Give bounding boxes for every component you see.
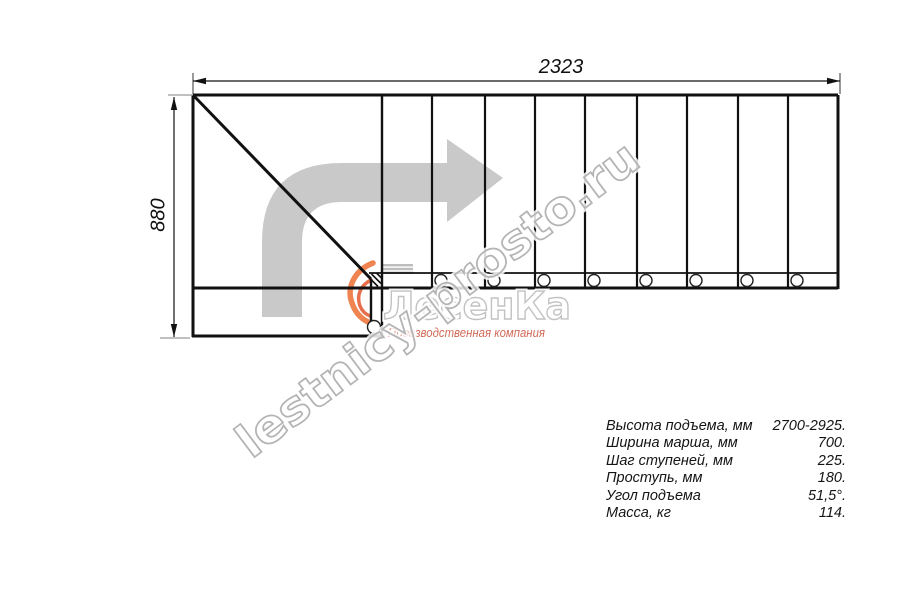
dim-arrow-up <box>171 97 177 110</box>
dimension-value-height: 880 <box>148 198 171 231</box>
dimension-top <box>193 73 840 94</box>
spec-list: Высота подъема, мм 2700-2925. Ширина мар… <box>606 418 846 522</box>
spec-label: Угол подъема <box>606 488 701 505</box>
spec-value: 225. <box>818 453 846 470</box>
spec-label: Ширина марша, мм <box>606 435 738 452</box>
logo-swoosh <box>350 263 373 322</box>
spec-row-step-pitch: Шаг ступеней, мм 225. <box>606 453 846 470</box>
dim-arrow-down <box>171 324 177 337</box>
spec-value: 700. <box>818 435 846 452</box>
spec-label: Проступь, мм <box>606 470 702 487</box>
spec-row-height: Высота подъема, мм 2700-2925. <box>606 418 846 435</box>
spec-row-angle: Угол подъема 51,5°. <box>606 488 846 505</box>
spec-value: 180. <box>818 470 846 487</box>
spec-value: 2700-2925. <box>773 418 846 435</box>
spec-label: Высота подъема, мм <box>606 418 753 435</box>
spec-value: 114. <box>819 505 846 522</box>
dim-arrow-right <box>827 78 840 84</box>
spec-row-flight-width: Ширина марша, мм 700. <box>606 435 846 452</box>
corner-hatch <box>372 273 383 287</box>
stair-drawing-page: ЛесенКа ЛесенКа Производственная компани… <box>0 0 900 600</box>
dim-arrow-left <box>193 78 206 84</box>
spec-row-tread: Проступь, мм 180. <box>606 470 846 487</box>
spec-label: Шаг ступеней, мм <box>606 453 733 470</box>
dimension-value-width: 2323 <box>539 56 584 79</box>
spec-row-mass: Масса, кг 114. <box>606 505 846 522</box>
spec-label: Масса, кг <box>606 505 671 522</box>
spec-value: 51,5°. <box>808 488 846 505</box>
